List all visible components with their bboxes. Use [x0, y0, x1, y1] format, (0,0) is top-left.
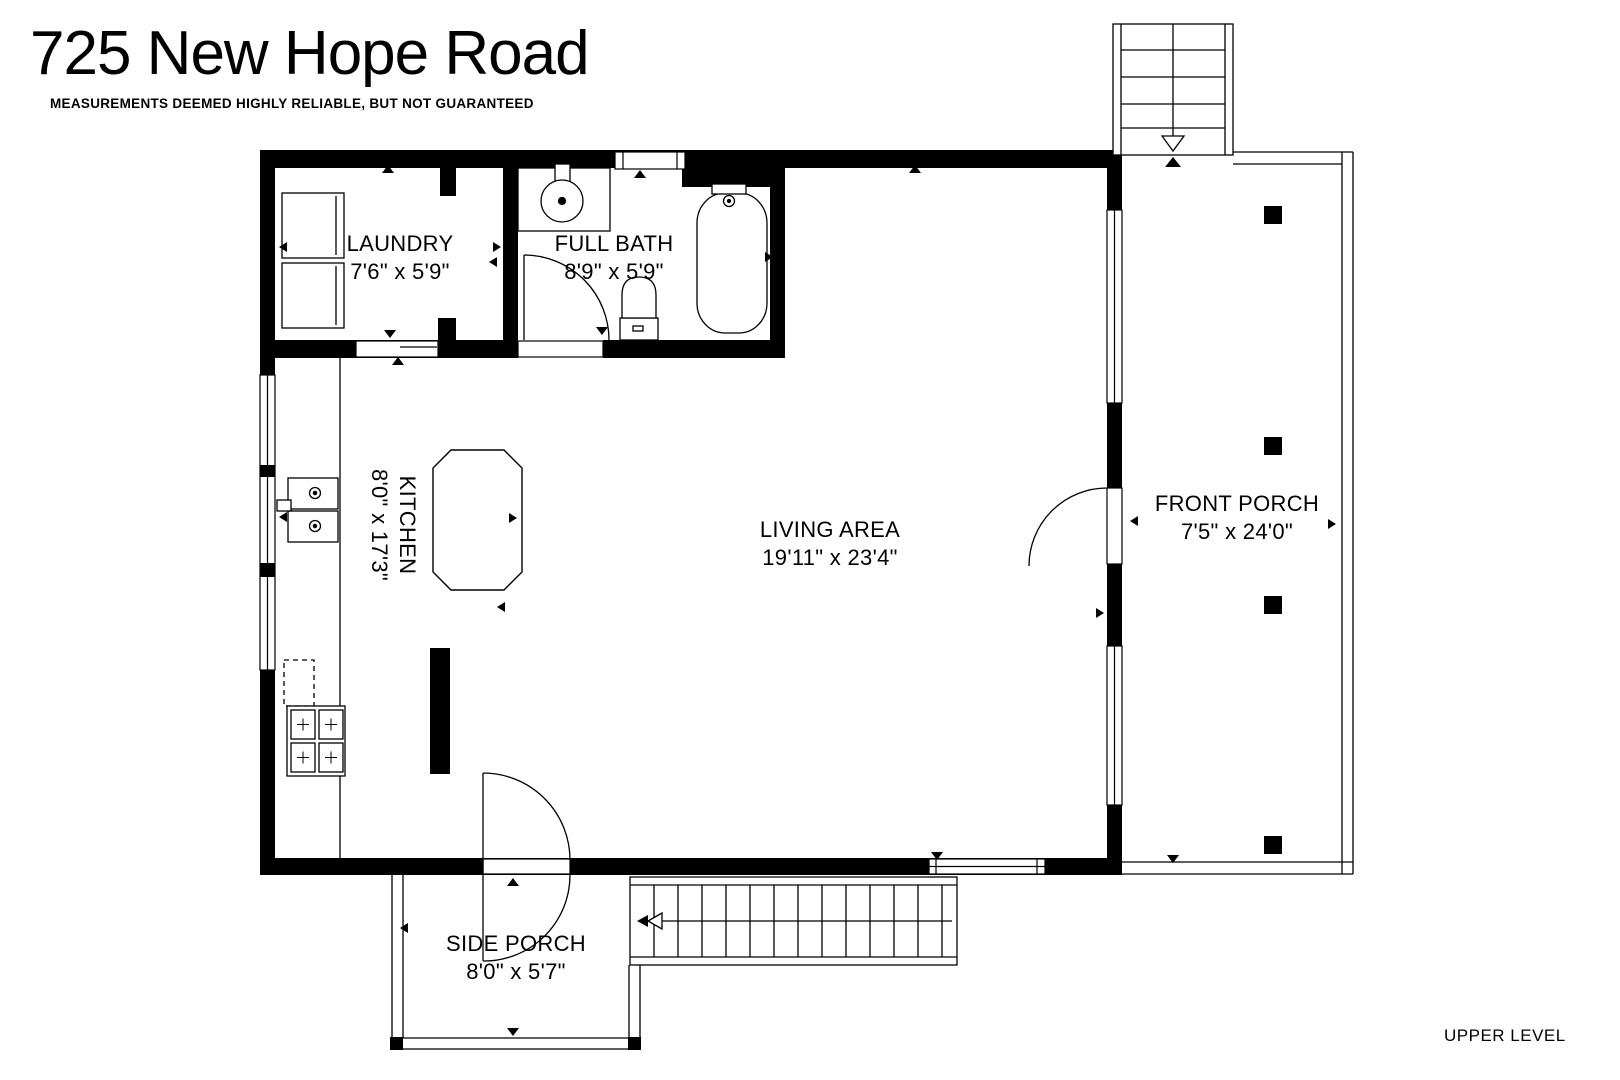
room-dims: 7'5" x 24'0" [1155, 518, 1319, 546]
kitchen-sink-drain-1-dot [313, 491, 316, 494]
wall-laundry-top-stub [440, 150, 456, 196]
doors [483, 255, 1107, 961]
page-disclaimer: MEASUREMENTS DEEMED HIGHLY RELIABLE, BUT… [50, 96, 534, 111]
room-dims: 19'11" x 23'4" [760, 544, 900, 572]
room-label-laundry: LAUNDRY 7'6" x 5'9" [347, 230, 454, 286]
room-label-side-porch: SIDE PORCH 8'0" x 5'7" [446, 930, 586, 986]
door-leaf-front [1107, 488, 1122, 564]
room-dims: 7'6" x 5'9" [347, 258, 454, 286]
room-name: LIVING AREA [760, 516, 900, 544]
kitchen-island [433, 450, 522, 590]
laundry-fixtures [282, 193, 344, 328]
room-label-full-bath: FULL BATH 8'9" x 5'9" [555, 230, 674, 286]
bathtub [697, 193, 767, 333]
page-title: 725 New Hope Road [30, 18, 589, 89]
porch-post [1264, 836, 1282, 854]
room-name: LAUNDRY [347, 230, 454, 258]
tub-faucet-deck [712, 184, 746, 194]
room-name: SIDE PORCH [446, 930, 586, 958]
window-kitchen-left-divider-2 [260, 563, 275, 577]
tub-drain [728, 200, 731, 203]
room-dims: 8'0" x 5'7" [446, 958, 586, 986]
door-arc-front [1029, 488, 1107, 566]
bath-sink-drain [559, 198, 566, 205]
window-bath [615, 152, 685, 169]
staircase-lower [630, 877, 957, 965]
room-name: KITCHEN [393, 469, 421, 581]
room-label-living-area: LIVING AREA 19'11" x 23'4" [760, 516, 900, 572]
porch-post [1264, 596, 1282, 614]
kitchen-sink-faucet [277, 500, 291, 511]
porch-post [1264, 206, 1282, 224]
window-kitchen-left-divider-1 [260, 465, 275, 477]
door-opening-bath [518, 341, 603, 357]
room-dims: 8'0" x 17'3" [365, 469, 393, 581]
level-label: UPPER LEVEL [1444, 1026, 1566, 1046]
kitchen-fixtures [277, 358, 522, 858]
wall-tub-alcove-top [682, 150, 785, 187]
wall-kitchen-stub [430, 648, 450, 774]
room-name: FRONT PORCH [1155, 490, 1319, 518]
dishwasher-dashed [284, 660, 314, 706]
floor-plan-page: 725 New Hope Road MEASUREMENTS DEEMED HI… [0, 0, 1620, 1080]
room-name: FULL BATH [555, 230, 674, 258]
door-arc-side-porch-upper [483, 773, 570, 860]
door-opening-side-porch [483, 859, 570, 874]
porch-post [1264, 437, 1282, 455]
kitchen-sink-drain-2-dot [313, 524, 316, 527]
wall-laundry-bottom-stub [438, 318, 456, 358]
toilet-flush-handle [633, 326, 643, 331]
washer [282, 193, 344, 258]
dryer [282, 263, 344, 328]
wall-bath-bottom [603, 340, 785, 358]
wall-laundry-bath-partition [503, 150, 518, 358]
porch-post [390, 1037, 403, 1050]
wall-bath-right [770, 150, 785, 358]
room-dims: 8'9" x 5'9" [555, 258, 674, 286]
door-opening-laundry [356, 341, 438, 357]
porch-post [628, 1037, 641, 1050]
staircase-upper [1113, 24, 1233, 167]
stair-upper-arrow-solid [1165, 157, 1181, 167]
room-label-front-porch: FRONT PORCH 7'5" x 24'0" [1155, 490, 1319, 546]
room-label-kitchen: KITCHEN 8'0" x 17'3" [365, 469, 421, 581]
